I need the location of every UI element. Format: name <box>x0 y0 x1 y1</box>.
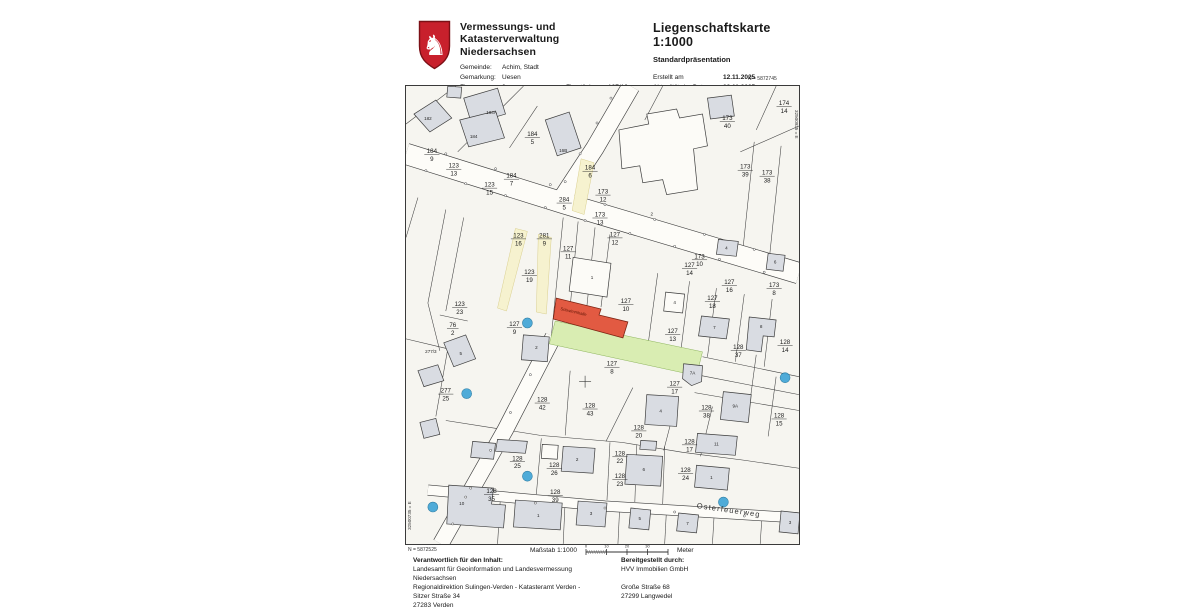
parcel-label-127-14: 12714 <box>682 262 697 277</box>
parcel-label-128-37: 12837 <box>731 344 746 359</box>
parcel-boundary <box>769 146 781 260</box>
parcel-label-174-14: 17414 <box>777 100 792 115</box>
grid-coordinate-left-edge: 32500735 = E <box>407 501 412 530</box>
map-title-block: Liegenschaftskarte 1:1000 Standardpräsen… <box>653 21 808 93</box>
svg-text:123: 123 <box>449 163 460 170</box>
svg-text:24: 24 <box>682 475 689 482</box>
survey-point <box>534 502 536 504</box>
building <box>541 444 558 459</box>
svg-text:284: 284 <box>559 197 570 204</box>
svg-text:128: 128 <box>684 438 695 445</box>
svg-text:127: 127 <box>724 279 735 286</box>
house-number-label: 10 <box>459 501 465 506</box>
prov-lines-2: Große Straße 68 <box>621 584 771 593</box>
utility-symbol <box>522 318 532 328</box>
authority-line2: Niedersachsen <box>460 46 650 58</box>
parcel-boundary <box>756 86 776 130</box>
building <box>746 317 776 352</box>
utility-symbol <box>522 471 532 481</box>
survey-point <box>718 258 720 260</box>
svg-text:15: 15 <box>776 420 783 427</box>
svg-text:7: 7 <box>510 181 514 188</box>
saxon-steed-icon: ♞ <box>422 30 447 61</box>
provider-block: Bereitgestellt durch: HVV Immobilien Gmb… <box>621 557 771 611</box>
svg-text:127: 127 <box>621 298 632 305</box>
svg-text:127: 127 <box>684 262 695 269</box>
grid-coordinate-bottom-left: N = 5872525 <box>408 547 437 553</box>
svg-text:13: 13 <box>450 171 457 178</box>
svg-text:22: 22 <box>616 458 623 465</box>
scale-bar-row: Maßstab 1:1000 0102030 Meter <box>530 544 694 556</box>
scale-label: Maßstab 1:1000 <box>530 547 577 554</box>
page-title: Liegenschaftskarte 1:1000 <box>653 21 808 49</box>
svg-text:184: 184 <box>506 173 517 180</box>
svg-text:38: 38 <box>703 412 710 419</box>
svg-text:127: 127 <box>563 245 574 252</box>
responsible-title: Verantwortlich für den Inhalt: <box>413 557 608 566</box>
svg-text:5: 5 <box>562 205 566 212</box>
svg-text:12: 12 <box>600 197 607 204</box>
building <box>640 440 657 450</box>
responsible-block: Verantwortlich für den Inhalt: Landesamt… <box>413 557 608 611</box>
parcel-label-127-8: 1278 <box>604 361 619 376</box>
svg-text:128: 128 <box>615 450 626 457</box>
svg-text:40: 40 <box>724 123 731 130</box>
parcel-label-128-38: 12838 <box>699 405 714 420</box>
svg-text:76: 76 <box>449 322 456 329</box>
house-number-label: 7A <box>690 371 697 376</box>
created-label: Erstellt am <box>653 73 723 83</box>
parcel-boundary <box>607 442 610 500</box>
svg-text:128: 128 <box>537 397 548 404</box>
gemarkung-label: Gemarkung: <box>460 73 500 83</box>
survey-point <box>452 523 454 525</box>
house-number-label: 9A <box>733 404 740 409</box>
svg-text:123: 123 <box>513 232 524 239</box>
svg-text:123: 123 <box>484 182 495 189</box>
prov-lines-3: 27299 Langwedel <box>621 593 771 602</box>
scale-tick-label: 0 <box>585 544 588 549</box>
parcel-label-123-23: 12323 <box>452 301 467 316</box>
parcel-label-128-17: 12817 <box>682 438 697 453</box>
parcel-boundary <box>740 126 799 152</box>
survey-point <box>604 203 606 205</box>
svg-text:173: 173 <box>762 170 773 177</box>
svg-text:37: 37 <box>735 352 742 359</box>
prov-lines-1 <box>621 575 771 584</box>
parcel-label-128-15: 12815 <box>772 412 787 427</box>
cadastral-map-svg: Schwimmhalle1849123131231518471845184628… <box>406 86 799 544</box>
parcel-label-173-40: 17340 <box>720 115 735 130</box>
survey-point <box>703 233 705 235</box>
path-strip-1 <box>498 228 528 311</box>
svg-text:174: 174 <box>779 100 790 107</box>
svg-text:25: 25 <box>514 463 521 470</box>
svg-text:35: 35 <box>488 496 495 503</box>
building <box>619 109 708 195</box>
parcel-label-184-5: 1845 <box>525 131 540 146</box>
scale-bar: 0102030 <box>585 544 669 556</box>
svg-text:26: 26 <box>551 470 558 477</box>
svg-text:128: 128 <box>634 424 645 431</box>
svg-text:277: 277 <box>441 388 452 395</box>
svg-text:18: 18 <box>709 303 716 310</box>
svg-text:16: 16 <box>726 287 733 294</box>
parcel-label-173-12: 17312 <box>595 189 610 204</box>
building <box>414 100 452 132</box>
svg-text:127: 127 <box>707 295 718 302</box>
house-number-label: 277/3 <box>425 349 437 354</box>
utility-symbol <box>428 502 438 512</box>
svg-text:13: 13 <box>597 219 604 226</box>
svg-text:128: 128 <box>615 473 626 480</box>
survey-point <box>763 271 765 273</box>
svg-text:128: 128 <box>780 339 791 346</box>
parcel-label-127-9: 1279 <box>507 321 522 336</box>
svg-text:14: 14 <box>686 270 693 277</box>
survey-point <box>544 206 546 208</box>
svg-text:13: 13 <box>669 336 676 343</box>
parcel-label-128-42: 12842 <box>535 397 550 412</box>
authority-block: Vermessungs- und Katasterverwaltung Nied… <box>460 21 650 92</box>
gemeinde-label: Gemeinde: <box>460 63 500 73</box>
survey-point <box>504 195 506 197</box>
survey-point <box>494 168 496 170</box>
survey-point <box>596 122 598 124</box>
svg-text:42: 42 <box>539 405 546 412</box>
house-number-label: 16B <box>559 148 567 153</box>
parcel-label-127-13: 12713 <box>665 328 680 343</box>
parcel-label-76-2: 762 <box>447 322 459 337</box>
svg-text:128: 128 <box>774 412 785 419</box>
resp-lines-2: Sitzer Straße 34 <box>413 593 608 602</box>
svg-text:14: 14 <box>782 347 789 354</box>
survey-point <box>654 218 656 220</box>
parcel-label-127-10: 12710 <box>618 298 633 313</box>
parcel-boundary <box>742 142 754 255</box>
house-number-label: 182 <box>424 116 432 121</box>
svg-text:23: 23 <box>616 481 623 488</box>
svg-text:128: 128 <box>733 344 744 351</box>
provider-title: Bereitgestellt durch: <box>621 557 771 566</box>
svg-text:173: 173 <box>595 212 606 219</box>
parcel-label-128-22: 12822 <box>612 450 627 465</box>
survey-point <box>489 449 491 451</box>
scale-tick-label: 30 <box>645 544 650 549</box>
parcel-label-128-20: 12820 <box>631 424 646 439</box>
svg-text:184: 184 <box>527 131 538 138</box>
svg-text:173: 173 <box>694 253 705 260</box>
svg-text:20: 20 <box>635 432 642 439</box>
svg-text:184: 184 <box>427 148 438 155</box>
parcel-label-123-19: 12319 <box>522 269 537 284</box>
svg-text:128: 128 <box>680 467 691 474</box>
svg-text:128: 128 <box>585 403 596 410</box>
svg-text:173: 173 <box>598 189 609 196</box>
svg-text:128: 128 <box>701 405 712 412</box>
building <box>418 365 444 387</box>
survey-point <box>674 511 676 513</box>
survey-point <box>584 219 586 221</box>
document-header: ♞ Vermessungs- und Katasterverwaltung Ni… <box>400 0 810 85</box>
parcel-boundary <box>565 371 570 436</box>
svg-text:173: 173 <box>769 282 780 289</box>
svg-text:173: 173 <box>722 115 733 122</box>
svg-text:5: 5 <box>531 139 535 146</box>
svg-text:12: 12 <box>612 239 619 246</box>
parcel-boundary <box>663 446 665 504</box>
svg-text:9: 9 <box>543 240 547 247</box>
svg-text:128: 128 <box>549 462 560 469</box>
svg-text:184: 184 <box>585 165 596 172</box>
grid-coordinate-right-edge: 32500925 = E <box>794 110 799 139</box>
parcel-boundary <box>606 388 633 442</box>
building <box>496 439 528 453</box>
svg-text:128: 128 <box>512 455 523 462</box>
house-number-label: 184A <box>486 110 498 115</box>
svg-text:127: 127 <box>669 381 680 388</box>
svg-text:8: 8 <box>772 290 776 297</box>
svg-text:6: 6 <box>588 173 592 180</box>
parcel-label-277-25: 27725 <box>438 388 453 403</box>
svg-text:9: 9 <box>430 156 434 163</box>
survey-point <box>674 245 676 247</box>
resp-lines-3: 27283 Verden <box>413 602 608 611</box>
gemeinde-value: Achim, Stadt <box>502 63 660 73</box>
gemarkung-value: Uesen <box>502 73 660 83</box>
parcel-label-128-26: 12826 <box>547 462 562 477</box>
parcel-boundary <box>446 217 464 311</box>
svg-text:123: 123 <box>524 269 535 276</box>
resp-lines-1: Regionaldirektion Sulingen-Verden - Kata… <box>413 584 608 593</box>
scale-tick-label: 20 <box>625 544 630 549</box>
svg-text:17: 17 <box>686 446 693 453</box>
survey-point <box>549 184 551 186</box>
svg-text:19: 19 <box>526 277 533 284</box>
parcel-label-173-38: 17338 <box>760 170 775 185</box>
svg-text:11: 11 <box>565 253 572 260</box>
scale-tick-label: 10 <box>604 544 609 549</box>
parcel-boundary <box>648 273 658 347</box>
parcel-label-127-17: 12717 <box>667 381 682 396</box>
utility-symbol <box>780 373 790 383</box>
parcel-label-127-18: 12718 <box>705 295 720 310</box>
svg-text:15: 15 <box>486 190 493 197</box>
house-number-label: 2 <box>650 212 653 217</box>
lower-saxony-coat-of-arms: ♞ <box>418 20 451 70</box>
building <box>447 86 462 98</box>
survey-point <box>529 374 531 376</box>
document-footer: Verantwortlich für den Inhalt: Landesamt… <box>413 557 803 611</box>
parcel-label-128-14: 12814 <box>778 339 793 354</box>
svg-text:39: 39 <box>552 497 559 504</box>
svg-text:128: 128 <box>486 488 497 495</box>
survey-point <box>629 232 631 234</box>
parcel-boundary <box>406 198 418 238</box>
survey-point <box>445 153 447 155</box>
survey-point <box>604 507 606 509</box>
grid-coordinate-top-right: N = 5872745 <box>748 76 777 82</box>
house-number-label: 11 <box>714 441 719 446</box>
svg-text:25: 25 <box>442 396 449 403</box>
parcel-label-128-24: 12824 <box>678 467 693 482</box>
svg-text:39: 39 <box>742 172 749 179</box>
house-number-label: 184 <box>470 134 478 139</box>
svg-text:38: 38 <box>764 178 771 185</box>
parcel-label-128-43: 12843 <box>583 403 598 418</box>
svg-text:9: 9 <box>513 329 517 336</box>
svg-text:17: 17 <box>671 389 678 396</box>
parcel-boundary <box>406 339 448 349</box>
survey-point <box>564 181 566 183</box>
svg-text:43: 43 <box>587 410 594 417</box>
survey-point <box>610 97 612 99</box>
svg-text:14: 14 <box>781 108 788 115</box>
svg-text:173: 173 <box>740 164 751 171</box>
building <box>420 418 440 438</box>
svg-text:127: 127 <box>509 321 520 328</box>
parcel-boundary <box>536 438 541 494</box>
survey-point <box>465 183 467 185</box>
prov-lines-0: HVV Immobilien GmbH <box>621 566 771 575</box>
cadastral-document: ♞ Vermessungs- und Katasterverwaltung Ni… <box>400 0 810 600</box>
parcel-label-127-16: 12716 <box>722 279 737 294</box>
survey-point <box>579 153 581 155</box>
svg-text:10: 10 <box>696 261 703 268</box>
survey-point <box>753 248 755 250</box>
svg-text:281: 281 <box>539 232 550 239</box>
svg-text:123: 123 <box>455 301 466 308</box>
survey-point <box>425 170 427 172</box>
survey-point <box>465 496 467 498</box>
svg-text:127: 127 <box>668 328 679 335</box>
resp-lines-0: Landesamt für Geoinformation und Landesv… <box>413 566 608 584</box>
scale-unit: Meter <box>677 547 694 554</box>
svg-text:127: 127 <box>610 231 621 238</box>
svg-text:2: 2 <box>451 330 455 337</box>
svg-text:8: 8 <box>610 369 614 376</box>
svg-text:127: 127 <box>607 361 618 368</box>
parcel-boundary <box>681 281 690 353</box>
authority-line1: Vermessungs- und Katasterverwaltung <box>460 21 650 46</box>
utility-symbol <box>462 389 472 399</box>
map-frame: Schwimmhalle1849123131231518471845184628… <box>405 85 800 545</box>
survey-point <box>509 411 511 413</box>
svg-text:16: 16 <box>515 240 522 247</box>
parcel-boundary <box>440 315 468 321</box>
parcel-boundary <box>428 303 440 351</box>
svg-text:23: 23 <box>456 309 463 316</box>
parcel-boundary <box>428 210 446 304</box>
parcel-label-128-25: 12825 <box>510 455 525 470</box>
svg-text:128: 128 <box>550 489 561 496</box>
survey-point <box>470 487 472 489</box>
parcel-label-173-8: 1738 <box>767 282 782 297</box>
svg-text:10: 10 <box>622 306 629 313</box>
presentation-subtitle: Standardpräsentation <box>653 55 808 64</box>
